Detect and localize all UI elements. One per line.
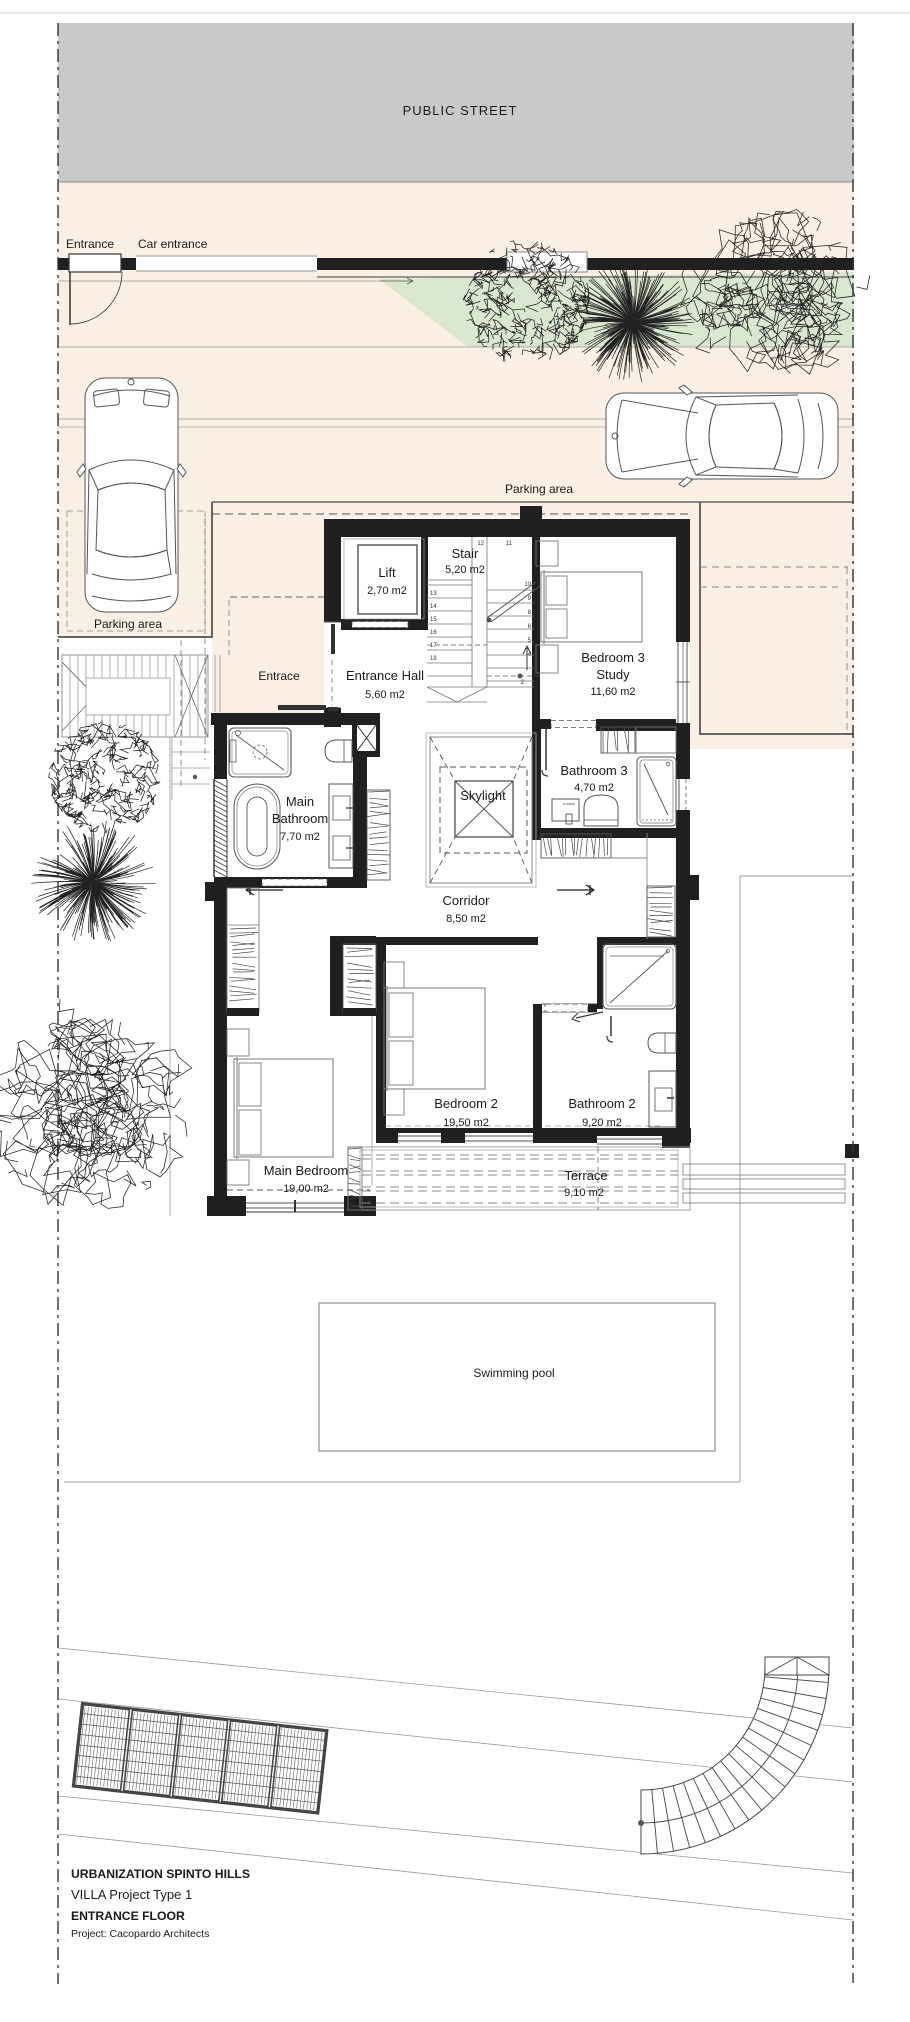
svg-text:Lift: Lift — [378, 565, 396, 580]
svg-text:8,50 m2: 8,50 m2 — [446, 913, 486, 925]
svg-text:Swimming pool: Swimming pool — [473, 1366, 554, 1380]
svg-text:4,70 m2: 4,70 m2 — [574, 782, 614, 794]
svg-text:2,70 m2: 2,70 m2 — [367, 585, 407, 597]
svg-text:13: 13 — [430, 591, 437, 597]
svg-text:Project: Cacopardo Architects: Project: Cacopardo Architects — [71, 1928, 209, 1940]
svg-text:5,20 m2: 5,20 m2 — [445, 564, 485, 576]
svg-text:Study: Study — [596, 667, 630, 682]
svg-text:VILLA Project Type 1: VILLA Project Type 1 — [71, 1887, 192, 1902]
svg-text:Entrance Hall: Entrance Hall — [346, 668, 424, 683]
svg-text:PUBLIC STREET: PUBLIC STREET — [403, 103, 518, 118]
svg-text:11,60 m2: 11,60 m2 — [590, 686, 635, 698]
svg-text:Bathroom 3: Bathroom 3 — [560, 763, 627, 778]
svg-text:19,00 m2: 19,00 m2 — [283, 1183, 329, 1195]
svg-text:7,70 m2: 7,70 m2 — [280, 831, 320, 843]
svg-text:15: 15 — [430, 617, 437, 623]
svg-text:Corridor: Corridor — [443, 893, 491, 908]
svg-text:Stair: Stair — [452, 546, 479, 561]
svg-text:Bedroom 2: Bedroom 2 — [434, 1096, 498, 1111]
svg-text:12: 12 — [477, 541, 484, 547]
svg-text:14: 14 — [430, 604, 437, 610]
svg-text:Parking area: Parking area — [505, 482, 573, 496]
svg-text:11: 11 — [506, 541, 513, 547]
svg-text:Bedroom 3: Bedroom 3 — [581, 650, 645, 665]
svg-text:Entrance: Entrance — [66, 237, 114, 251]
svg-text:Car entrance: Car entrance — [138, 237, 208, 251]
svg-text:5,60 m2: 5,60 m2 — [365, 689, 405, 701]
svg-text:18: 18 — [430, 656, 437, 662]
svg-text:Main Bedroom: Main Bedroom — [264, 1163, 349, 1178]
svg-text:Main: Main — [286, 794, 314, 809]
svg-text:ENTRANCE FLOOR: ENTRANCE FLOOR — [71, 1909, 185, 1923]
svg-text:17: 17 — [430, 643, 437, 649]
svg-text:Bathroom: Bathroom — [272, 811, 328, 826]
svg-text:10: 10 — [524, 582, 531, 588]
svg-text:9,10 m2: 9,10 m2 — [564, 1187, 604, 1199]
svg-text:Skylight: Skylight — [460, 788, 506, 803]
svg-text:19,50 m2: 19,50 m2 — [443, 1117, 489, 1129]
svg-text:Parking area: Parking area — [94, 617, 162, 631]
svg-text:Entrace: Entrace — [258, 669, 300, 683]
svg-text:URBANIZATION SPINTO HILLS: URBANIZATION SPINTO HILLS — [71, 1867, 250, 1881]
svg-text:9,20 m2: 9,20 m2 — [582, 1117, 622, 1129]
svg-text:Bathroom 2: Bathroom 2 — [568, 1096, 635, 1111]
svg-text:16: 16 — [430, 630, 437, 636]
svg-text:Terrace: Terrace — [564, 1168, 607, 1183]
